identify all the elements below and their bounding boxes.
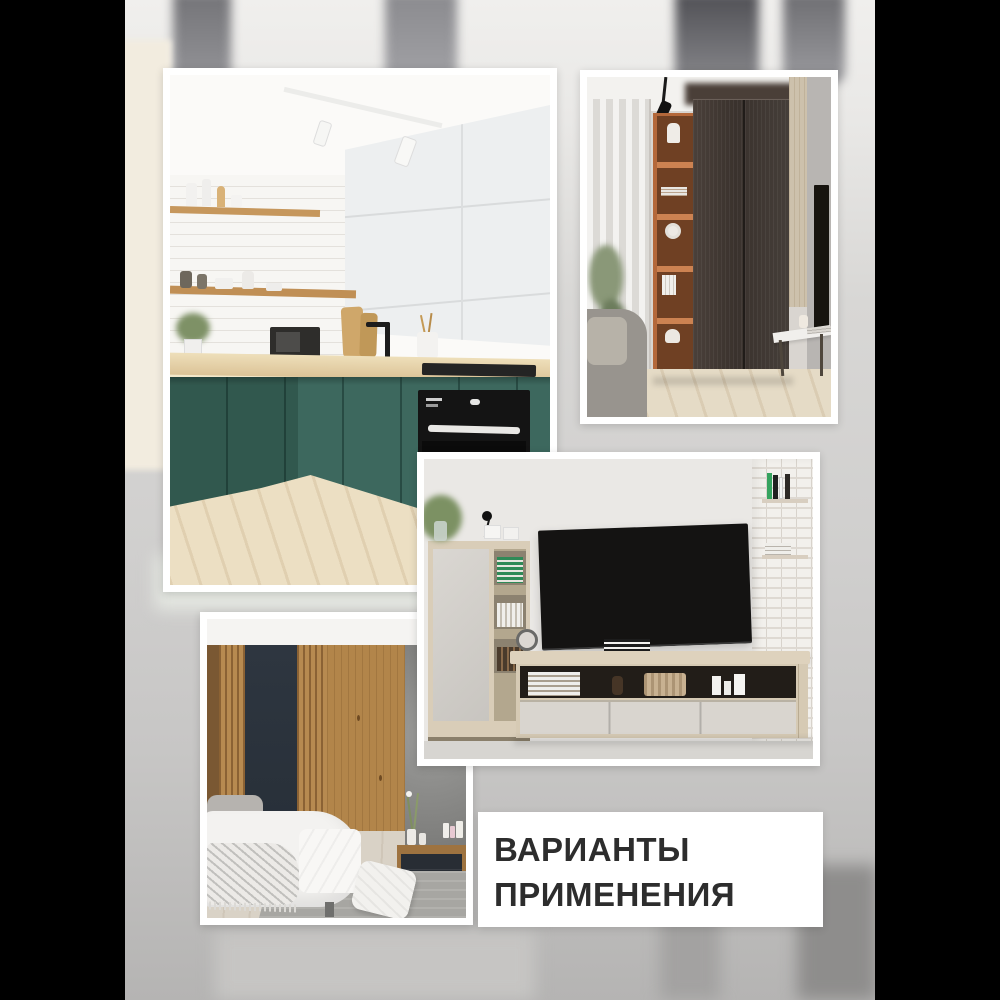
microwave-window — [276, 332, 300, 352]
wood-door-panel — [327, 645, 405, 831]
cosmetic-bottle — [443, 823, 449, 838]
shelf-dishes — [186, 183, 197, 206]
cubby-books-green — [497, 557, 523, 583]
book-spine — [773, 475, 778, 499]
shelf-books-flat — [661, 187, 687, 196]
shelf-bottle — [217, 186, 225, 207]
books-on-bench — [604, 639, 650, 651]
oven-display — [426, 398, 442, 401]
product-image: ВАРИАНТЫ ПРИМЕНЕНИЯ — [125, 0, 875, 1000]
screenshot-root: { "caption": { "line1": "ВАРИАНТЫ", "lin… — [0, 0, 1000, 1000]
floor-shadow — [653, 377, 793, 385]
track-spotlight — [312, 120, 332, 148]
wardrobe-scene — [587, 77, 831, 417]
bench-side-panel — [798, 664, 808, 738]
wood-knot — [357, 715, 360, 721]
console-leg — [820, 334, 823, 376]
storage-box — [503, 527, 519, 540]
cabinet-concrete-door — [433, 549, 489, 721]
mattress-corner — [299, 829, 361, 893]
decor-disc — [516, 629, 538, 651]
vase — [419, 833, 426, 845]
shelf-jar — [197, 274, 207, 289]
shelf-pitcher — [242, 271, 254, 289]
caption-box: ВАРИАНТЫ ПРИМЕНЕНИЯ — [478, 812, 823, 927]
wardrobe-grain — [693, 100, 789, 391]
candle — [712, 676, 721, 695]
caption-line-1: ВАРИАНТЫ — [494, 827, 823, 872]
wall-shelf — [762, 555, 808, 559]
cosmetic-bottle — [450, 826, 455, 838]
caption-line-2: ПРИМЕНЕНИЯ — [494, 872, 823, 917]
blurred-floor-highlight — [215, 930, 535, 1000]
shelf-books-upright — [662, 275, 676, 295]
bench-drawers — [520, 700, 796, 734]
shelf-dishes — [202, 179, 211, 206]
cubby-books-white — [497, 603, 523, 627]
vase — [407, 829, 416, 845]
candle — [724, 681, 731, 695]
oak-cabinet — [428, 541, 530, 745]
shelf-plates — [266, 283, 282, 291]
book-spine — [785, 474, 790, 499]
photo-wardrobe-room — [580, 70, 838, 424]
shelf-jar — [612, 676, 623, 695]
utensil-jar — [417, 332, 438, 358]
wood-knot — [379, 775, 382, 781]
wardrobe-door-seam — [743, 100, 745, 391]
cabinet-seam — [345, 197, 550, 219]
oven-knob — [470, 399, 480, 405]
tv-edge — [814, 185, 829, 335]
shelf-ring-vase — [665, 223, 681, 239]
bed-throw — [207, 843, 299, 905]
storage-box — [484, 525, 501, 539]
bed-leg — [325, 902, 334, 917]
throw-fringe — [209, 901, 297, 912]
cabinet-seam — [461, 105, 463, 385]
shelf-cup — [231, 195, 242, 207]
tv-bench-top — [510, 651, 810, 664]
bench-shadow — [514, 738, 813, 745]
cosmetic-bottle — [456, 821, 463, 838]
window-foliage — [589, 245, 623, 309]
candle — [734, 674, 745, 695]
cabinet-seam — [345, 291, 550, 313]
tv-room-scene — [424, 459, 813, 759]
light-track — [284, 87, 443, 128]
slat-panel — [297, 645, 327, 825]
tv-bench-body — [516, 664, 808, 738]
photo-tv-living-room — [417, 452, 820, 766]
book-spine — [767, 473, 772, 499]
cutting-board — [359, 313, 378, 358]
shelf-book-stack — [528, 672, 580, 696]
plant-vase — [434, 521, 447, 541]
console-vase — [799, 315, 808, 328]
tv — [538, 523, 752, 650]
shelf-decor — [665, 329, 680, 343]
book-stack — [765, 543, 791, 555]
oven-display — [426, 404, 438, 407]
book-spine — [779, 477, 783, 499]
wardrobe — [693, 99, 789, 391]
wall-shelf — [762, 499, 808, 503]
hob — [422, 363, 536, 377]
wood-edge-panel — [207, 645, 219, 813]
wood-wall-panel — [789, 77, 807, 307]
shelf-bowls — [215, 278, 233, 289]
sofa-cushion — [587, 317, 627, 365]
flower-bloom — [406, 791, 412, 797]
shelf-basket — [644, 673, 686, 696]
shelf-jar — [180, 271, 192, 288]
slat-panel — [219, 645, 245, 815]
orange-shelf — [653, 113, 697, 385]
shelf-vase — [667, 123, 680, 143]
